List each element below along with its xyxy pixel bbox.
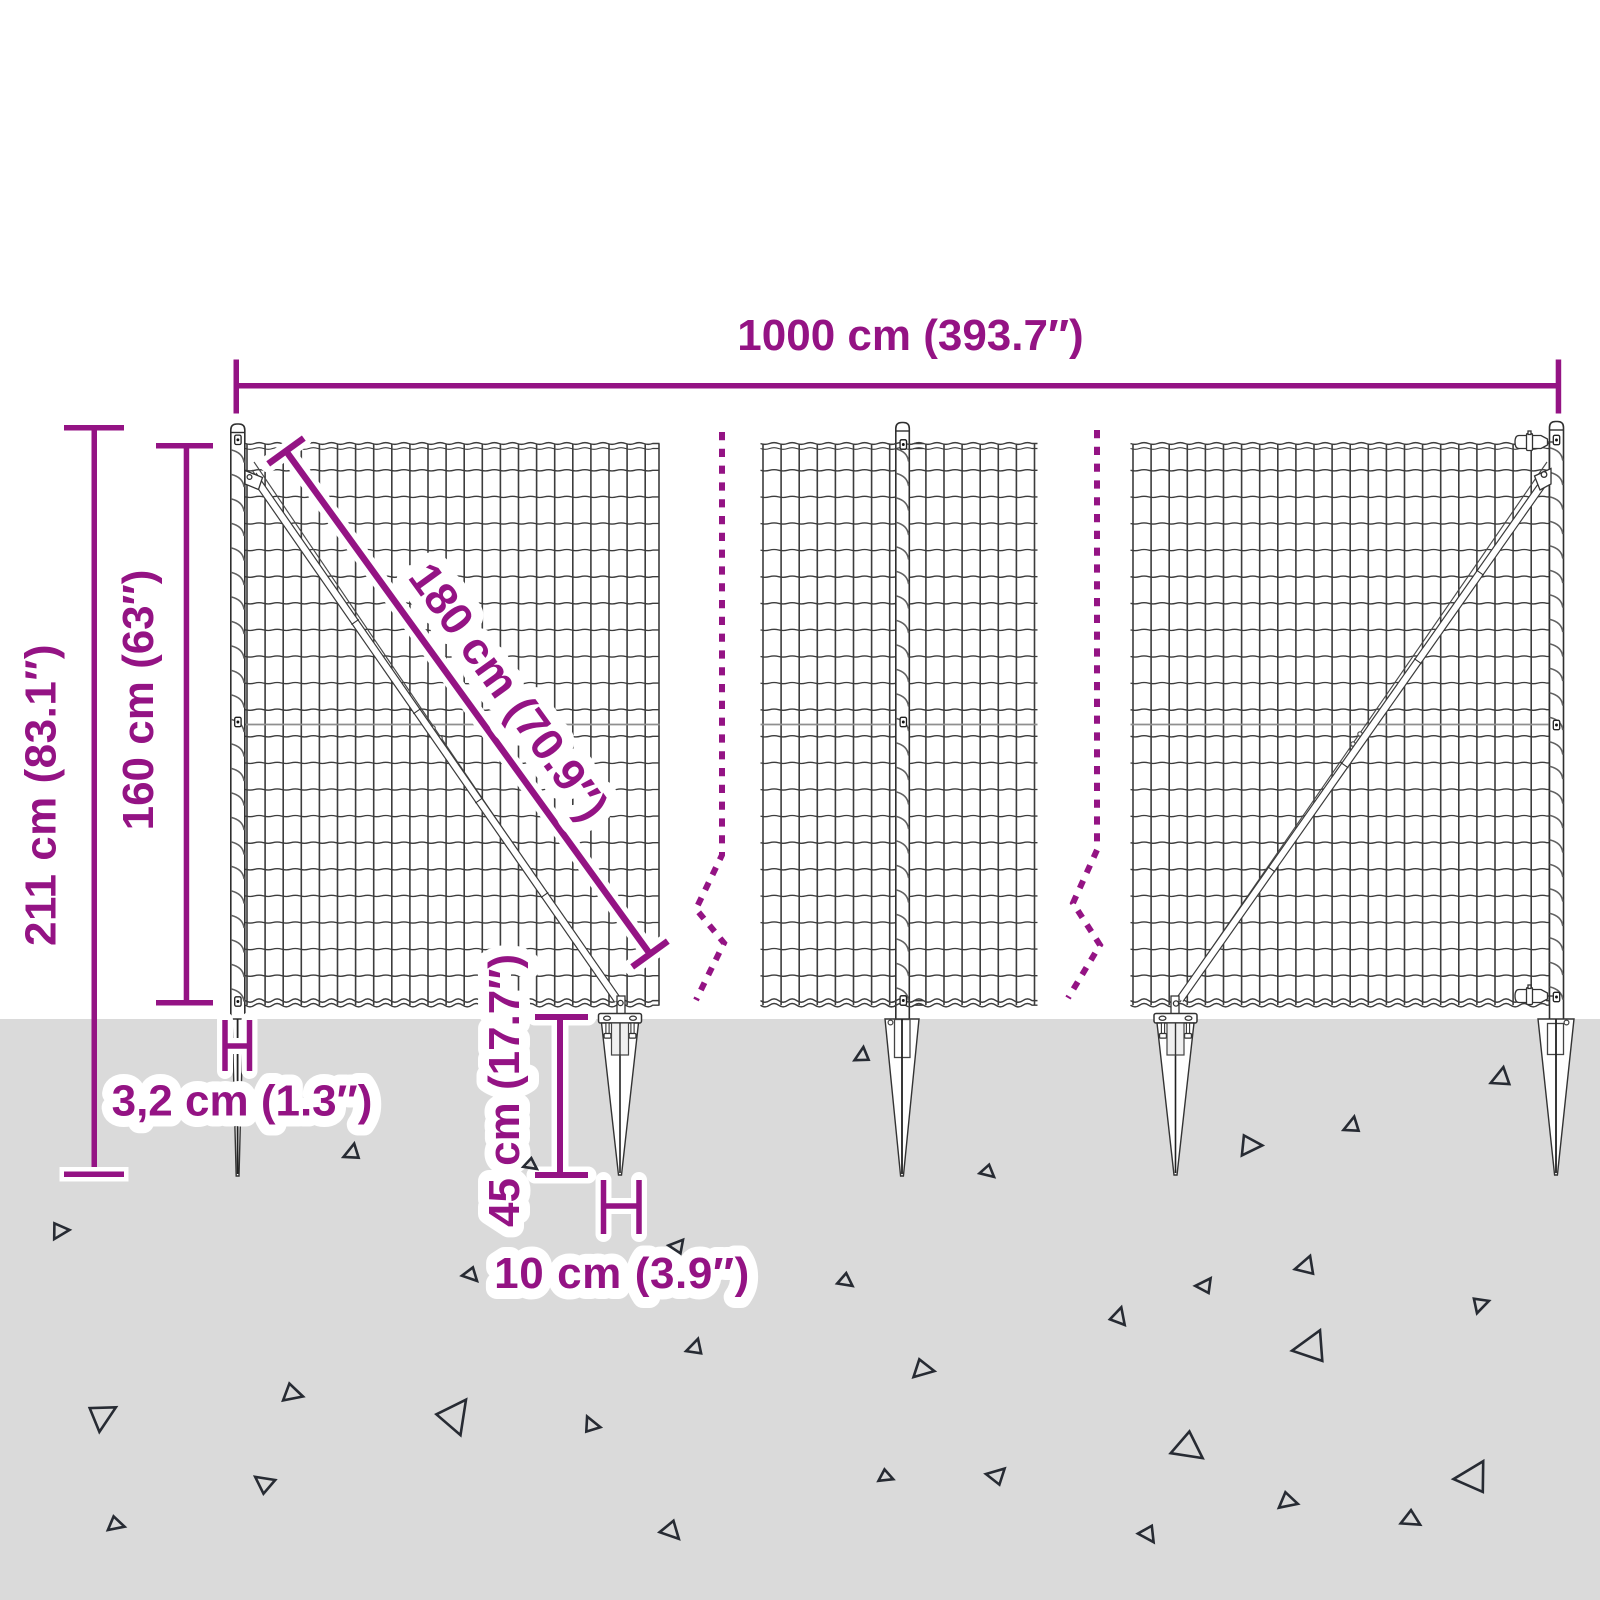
svg-text:211 cm (83.1″): 211 cm (83.1″): [17, 644, 66, 946]
svg-text:10 cm (3.9″): 10 cm (3.9″): [494, 1249, 750, 1298]
svg-text:45 cm (17.7″): 45 cm (17.7″): [480, 954, 529, 1227]
svg-text:3,2 cm (1.3″): 3,2 cm (1.3″): [112, 1077, 373, 1126]
svg-text:180 cm (70.9″): 180 cm (70.9″): [399, 553, 619, 829]
svg-text:1000 cm (393.7″): 1000 cm (393.7″): [737, 311, 1083, 360]
svg-text:160 cm (63″): 160 cm (63″): [114, 570, 163, 831]
